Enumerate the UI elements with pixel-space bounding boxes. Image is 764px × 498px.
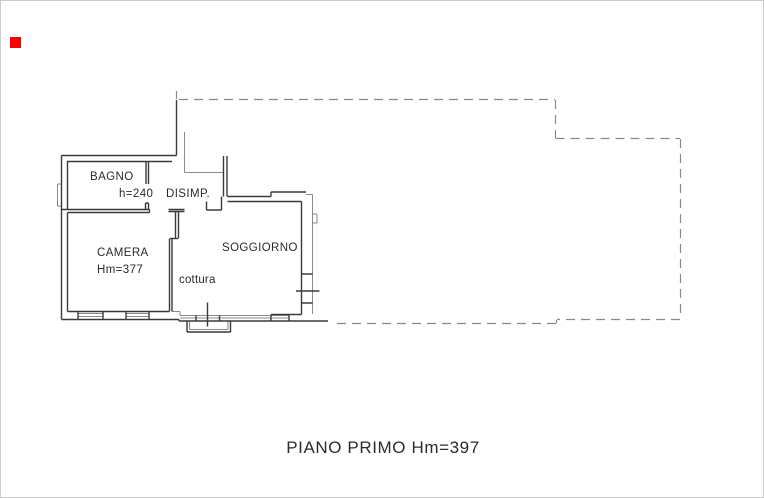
label-bagno-height: h=240	[119, 188, 153, 200]
soggiorno-top-outer	[228, 192, 307, 197]
camera-window-ticks	[78, 312, 149, 320]
right-window	[296, 274, 320, 303]
camera-cottura-wall	[170, 239, 173, 312]
door-jamb	[146, 203, 149, 210]
label-camera-height: Hm=377	[97, 264, 143, 276]
balcony-outline	[187, 321, 231, 332]
bagno-camera-wall	[62, 210, 150, 213]
label-disimp: DISIMP.	[166, 188, 210, 200]
entry-wall	[224, 156, 228, 197]
disimp-door-stem	[176, 212, 179, 239]
floor-title: PIANO PRIMO Hm=397	[1, 438, 764, 458]
disimp-door-cap	[169, 210, 185, 212]
walls	[62, 100, 329, 332]
bottom-outer-wall	[62, 320, 329, 322]
label-soggiorno: SOGGIORNO	[222, 242, 298, 254]
floor-plan-page: BAGNO h=240 DISIMP. CAMERA Hm=377 SOGGIO…	[0, 0, 764, 498]
label-bagno: BAGNO	[90, 171, 134, 183]
label-cottura: cottura	[179, 274, 216, 286]
bagno-disimp-partition	[146, 162, 149, 184]
dashed-boundary	[177, 91, 681, 324]
label-camera: CAMERA	[97, 247, 149, 259]
